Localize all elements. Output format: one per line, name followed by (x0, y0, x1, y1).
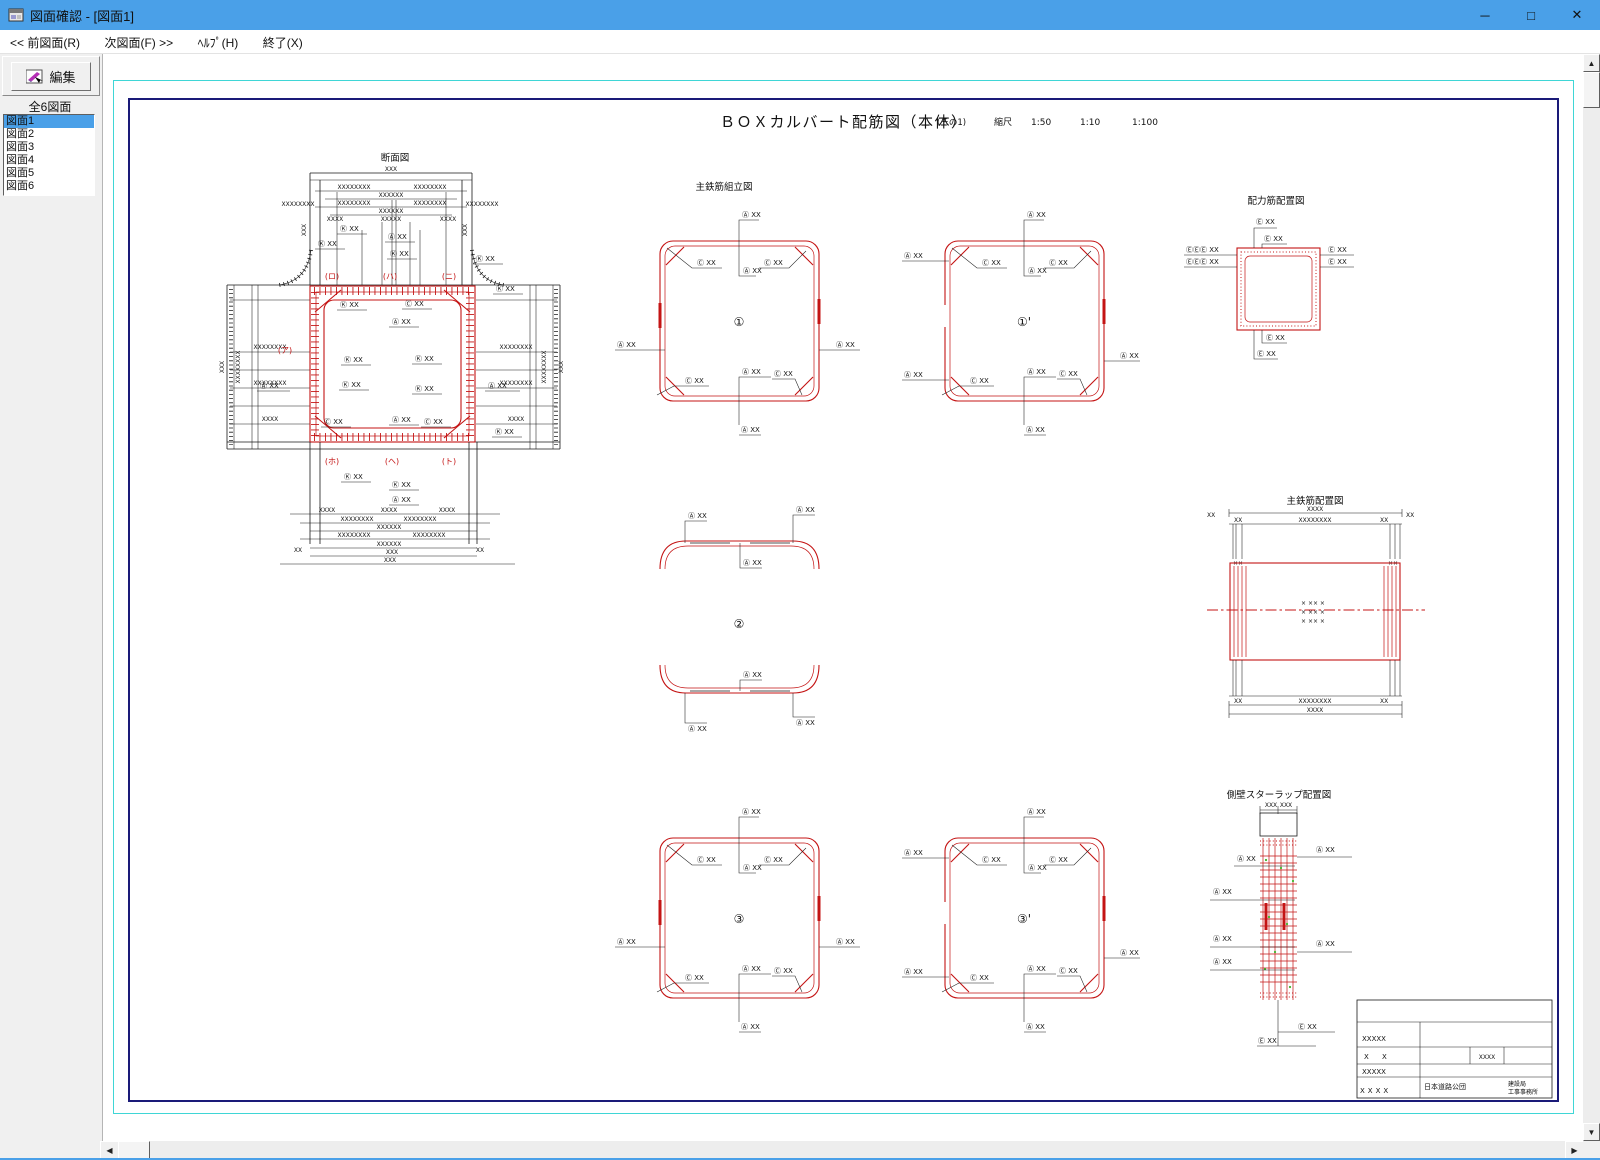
edit-button-label: 編集 (49, 67, 75, 86)
svg-text:ⒺⒺⒺ XX: ⒺⒺⒺ XX (1186, 258, 1219, 266)
sidebar: 編集 全6図面 図面1 図面2 図面3 図面4 図面5 図面6 (0, 54, 103, 1160)
distribution-bar-diagram: 配力筋配置図 Ⓔ XX Ⓔ XX ⒺⒺⒺ XX ⒺⒺⒺ XX Ⓔ XX Ⓔ XX… (1184, 195, 1354, 359)
list-item-drawing4[interactable]: 図面4 (4, 154, 94, 167)
svg-text:XXXX: XXXX (327, 216, 343, 223)
svg-text:XX: XX (294, 547, 302, 554)
svg-text:Ⓐ XX: Ⓐ XX (1120, 949, 1139, 957)
svg-text:× ×× ×: × ×× × (1301, 609, 1325, 616)
svg-text:XX: XX (1380, 698, 1388, 705)
svg-text:Ⓐ XX: Ⓐ XX (1213, 888, 1232, 896)
svg-text:Ⓐ XX: Ⓐ XX (1027, 211, 1046, 219)
svg-text:Ⓐ XX: Ⓐ XX (743, 559, 762, 567)
drawing-paper: ＢＯＸカルバート配筋図（本体） (その1) 縮尺 1:50 1:10 1:100… (128, 98, 1559, 1102)
svg-text:XXX: XXX (384, 557, 396, 564)
svg-text:XXXX: XXXX (508, 416, 524, 423)
svg-text:X: X (1364, 1053, 1369, 1061)
titlebar[interactable]: 図面確認 - [図面1] ─ □ ✕ (0, 0, 1600, 30)
svg-text:XXXXXXXX: XXXXXXXX (341, 516, 374, 523)
assembly-diagram-1: Ⓐ XX Ⓐ XX Ⓒ XX Ⓒ XX Ⓐ XX Ⓐ XX Ⓐ XX Ⓒ XX … (615, 211, 860, 435)
svg-text:XX: XX (1406, 512, 1414, 519)
svg-text:XXX: XXX (386, 549, 398, 556)
svg-text:Ⓐ XX: Ⓐ XX (1120, 352, 1139, 360)
edit-button[interactable]: 編集 (11, 62, 91, 91)
svg-text:XXX: XXX (462, 224, 469, 236)
svg-text:XXXXXXXX: XXXXXXXX (338, 200, 371, 207)
assembly-diagram-2: Ⓐ XX Ⓐ XX Ⓐ XX ② Ⓐ XX Ⓐ XX Ⓐ XX (660, 506, 819, 733)
svg-text:Ⓚ XX: Ⓚ XX (392, 481, 411, 489)
toolbar-frame: 編集 (2, 56, 100, 96)
svg-text:Ⓔ XX: Ⓔ XX (1328, 258, 1347, 266)
svg-text:XXXX: XXXX (319, 507, 335, 514)
svg-text:Ⓐ XX: Ⓐ XX (488, 382, 507, 390)
svg-text:③: ③ (734, 912, 745, 926)
svg-text:Ⓚ XX: Ⓚ XX (342, 381, 361, 389)
svg-text:XXXX: XXXX (1307, 506, 1323, 513)
svg-text:Ⓚ XX: Ⓚ XX (496, 285, 515, 293)
svg-text:Ⓔ XX: Ⓔ XX (1328, 246, 1347, 254)
svg-text:配力筋配置図: 配力筋配置図 (1247, 195, 1304, 207)
svg-text:Ⓒ XX: Ⓒ XX (774, 967, 793, 975)
scroll-down-icon: ▼ (1588, 1128, 1596, 1137)
svg-text:Ⓚ XX: Ⓚ XX (415, 355, 434, 363)
svg-text:(ホ): (ホ) (325, 457, 339, 466)
maximize-button[interactable]: □ (1508, 0, 1554, 30)
svg-text:建設局: 建設局 (1508, 1080, 1526, 1088)
svg-text:Ⓒ XX: Ⓒ XX (970, 974, 989, 982)
svg-text:Ⓚ XX: Ⓚ XX (344, 473, 363, 481)
svg-text:Ⓐ XX: Ⓐ XX (741, 426, 760, 434)
svg-text:XXXX: XXXX (1360, 1087, 1391, 1095)
svg-text:Ⓒ XX: Ⓒ XX (982, 856, 1001, 864)
minimize-button[interactable]: ─ (1462, 0, 1508, 30)
svg-text:③': ③' (1017, 912, 1031, 926)
svg-text:Ⓒ XX: Ⓒ XX (982, 259, 1001, 267)
app-icon (8, 7, 24, 23)
drawing-viewport[interactable]: ＢＯＸカルバート配筋図（本体） (その1) 縮尺 1:50 1:10 1:100… (103, 54, 1583, 1141)
svg-text:Ⓐ XX: Ⓐ XX (392, 416, 411, 424)
svg-text:XXXXXXXX: XXXXXXXX (235, 351, 242, 384)
horizontal-scroll-thumb[interactable] (118, 1141, 150, 1159)
svg-text:Ⓒ XX: Ⓒ XX (1049, 259, 1068, 267)
svg-text:Ⓐ XX: Ⓐ XX (1213, 958, 1232, 966)
svg-text:(ト): (ト) (442, 457, 456, 466)
svg-text:Ⓐ XX: Ⓐ XX (904, 968, 923, 976)
svg-text:XXX: XXX (219, 361, 226, 373)
title-block: XXXXX X X XXXX XXXXX XXXX 日本道路公団 建設局 工事事… (1357, 1000, 1552, 1098)
svg-text:Ⓐ XX: Ⓐ XX (688, 512, 707, 520)
svg-text:Ⓒ XX: Ⓒ XX (324, 418, 343, 426)
svg-text:Ⓐ XX: Ⓐ XX (617, 341, 636, 349)
svg-text:Ⓔ XX: Ⓔ XX (1257, 350, 1276, 358)
svg-text:工事事務所: 工事事務所 (1508, 1088, 1538, 1096)
svg-text:XXXXX: XXXXX (1362, 1068, 1386, 1076)
svg-text:XXX: XXX (301, 224, 308, 236)
svg-text:Ⓐ XX: Ⓐ XX (741, 1023, 760, 1031)
sheet-title: ＢＯＸカルバート配筋図（本体） (その1) 縮尺 1:50 1:10 1:100 (720, 113, 1158, 131)
svg-text:Ⓚ XX: Ⓚ XX (344, 356, 363, 364)
svg-text:1:10: 1:10 (1080, 118, 1100, 128)
scroll-left-icon: ◀ (106, 1146, 112, 1155)
svg-text:XXXXX: XXXXX (1362, 1035, 1386, 1043)
list-item-drawing1[interactable]: 図面1 (4, 115, 94, 128)
svg-text:Ⓐ XX: Ⓐ XX (836, 938, 855, 946)
svg-text:Ⓚ XX: Ⓚ XX (415, 385, 434, 393)
svg-text:XXXX: XXXX (381, 507, 397, 514)
svg-text:Ⓐ XX: Ⓐ XX (1027, 965, 1046, 973)
assembly-diagram-3: Ⓐ XX Ⓐ XX Ⓒ XX Ⓒ XX Ⓐ XX Ⓐ XX Ⓐ XX Ⓒ XX … (615, 808, 860, 1032)
svg-text:XXXXX: XXXXX (381, 216, 402, 223)
svg-text:XXXXXX: XXXXXX (377, 541, 402, 548)
list-item-drawing5[interactable]: 図面5 (4, 167, 94, 180)
drawing-count-label: 全6図面 (0, 98, 100, 115)
svg-text:Ⓐ XX: Ⓐ XX (796, 506, 815, 514)
vertical-scrollbar[interactable]: ▲ ▼ (1583, 54, 1600, 1141)
svg-text:× ×× ×: × ×× × (1301, 618, 1325, 625)
list-item-drawing2[interactable]: 図面2 (4, 128, 94, 141)
svg-text:XXXX: XXXX (1479, 1054, 1495, 1061)
svg-text:②: ② (734, 617, 745, 631)
window-controls: ─ □ ✕ (1462, 0, 1600, 30)
svg-text:XXXXXXXX: XXXXXXXX (1299, 698, 1332, 705)
menu-help[interactable]: ﾍﾙﾌﾟ(H) (188, 30, 249, 51)
svg-text:XXXXXXXX: XXXXXXXX (282, 201, 315, 208)
drawing-canvas: ＢＯＸカルバート配筋図（本体） (その1) 縮尺 1:50 1:10 1:100… (130, 100, 1557, 1100)
edit-icon (26, 69, 44, 84)
stirrup-diagram: 側壁スターラップ配置図 XXX XXX Ⓐ XX Ⓐ XX Ⓐ XX Ⓐ XX … (1210, 789, 1352, 1046)
svg-text:Ⓒ XX: Ⓒ XX (774, 370, 793, 378)
svg-text:Ⓒ XX: Ⓒ XX (1059, 967, 1078, 975)
svg-text:縮尺: 縮尺 (994, 116, 1012, 128)
svg-text:Ⓐ XX: Ⓐ XX (904, 371, 923, 379)
scrollbar-corner (1583, 1141, 1600, 1159)
svg-text:X: X (1382, 1053, 1387, 1061)
svg-text:Ⓐ XX: Ⓐ XX (904, 252, 923, 260)
svg-text:XX: XX (476, 547, 484, 554)
svg-text:Ⓐ XX: Ⓐ XX (392, 318, 411, 326)
svg-text:XXX: XXX (385, 166, 397, 173)
svg-text:XXXXXX: XXXXXX (379, 208, 404, 215)
scroll-up-button[interactable]: ▲ (1583, 54, 1600, 72)
svg-text:Ⓚ XX: Ⓚ XX (340, 225, 359, 233)
svg-text:Ⓚ XX: Ⓚ XX (318, 240, 337, 248)
cross-section-view: 断面図 XXX XXXXXXXX XXXXXXXX XXXXXX XXXXXXX… (219, 152, 565, 564)
svg-text:①: ① (734, 315, 745, 329)
svg-text:Ⓐ XX: Ⓐ XX (1026, 426, 1045, 434)
svg-text:XXXXXXXX: XXXXXXXX (414, 200, 447, 207)
svg-text:Ⓐ XX: Ⓐ XX (260, 382, 279, 390)
svg-text:XXXXXXXX: XXXXXXXX (466, 201, 499, 208)
svg-text:Ⓐ XX: Ⓐ XX (742, 211, 761, 219)
svg-text:XXX: XXX (558, 361, 565, 373)
close-button[interactable]: ✕ (1554, 0, 1600, 30)
svg-text:× ×× ×: × ×× × (1301, 600, 1325, 607)
svg-text:Ⓒ XX: Ⓒ XX (697, 856, 716, 864)
svg-text:XX: XX (1207, 512, 1215, 519)
svg-text:(ロ): (ロ) (325, 272, 339, 281)
scroll-up-icon: ▲ (1588, 59, 1596, 68)
svg-text:XXXXXXXX: XXXXXXXX (338, 184, 371, 191)
svg-text:XXXXXXXX: XXXXXXXX (404, 516, 437, 523)
svg-text:XX: XX (1234, 517, 1242, 524)
scroll-right-icon: ▶ (1571, 1146, 1577, 1155)
svg-text:XXXXXXXX: XXXXXXXX (413, 532, 446, 539)
svg-text:断面図: 断面図 (381, 152, 410, 164)
svg-text:1:100: 1:100 (1132, 118, 1158, 128)
scroll-left-button[interactable]: ◀ (100, 1141, 119, 1159)
svg-text:Ⓐ XX: Ⓐ XX (1316, 940, 1335, 948)
svg-text:Ⓔ XX: Ⓔ XX (1256, 218, 1275, 226)
svg-text:Ⓐ XX: Ⓐ XX (742, 965, 761, 973)
svg-text:(ア): (ア) (278, 346, 292, 355)
assembly-title: 主鉄筋組立図 (695, 181, 752, 193)
svg-text:XX: XX (1234, 698, 1242, 705)
svg-text:Ⓐ XX: Ⓐ XX (1213, 935, 1232, 943)
svg-text:Ⓚ XX: Ⓚ XX (476, 255, 495, 263)
svg-text:XXXX: XXXX (1307, 707, 1323, 714)
svg-text:Ⓐ XX: Ⓐ XX (1027, 808, 1046, 816)
svg-text:Ⓒ XX: Ⓒ XX (424, 418, 443, 426)
svg-text:Ⓒ XX: Ⓒ XX (697, 259, 716, 267)
assembly-diagram-3p: Ⓐ XX Ⓐ XX Ⓒ XX Ⓒ XX Ⓐ XX Ⓐ XX Ⓐ XX Ⓐ XX … (902, 808, 1140, 1032)
svg-text:Ⓐ XX: Ⓐ XX (742, 368, 761, 376)
svg-text:(その1): (その1) (937, 118, 966, 128)
svg-text:Ⓐ XX: Ⓐ XX (688, 725, 707, 733)
svg-text:Ⓒ XX: Ⓒ XX (685, 974, 704, 982)
svg-text:Ⓚ XX: Ⓚ XX (390, 250, 409, 258)
menubar: << 前図面(R) 次図面(F) >> ﾍﾙﾌﾟ(H) 終了(X) (0, 30, 1600, 54)
svg-text:Ⓒ XX: Ⓒ XX (405, 300, 424, 308)
svg-text:Ⓐ XX: Ⓐ XX (796, 719, 815, 727)
svg-text:Ⓔ XX: Ⓔ XX (1264, 235, 1283, 243)
svg-text:XXXXXX: XXXXXX (377, 524, 402, 531)
scroll-right-button[interactable]: ▶ (1565, 1141, 1584, 1159)
svg-text:XXXXXXXX: XXXXXXXX (414, 184, 447, 191)
svg-text:XXX: XXX (1280, 802, 1292, 809)
vertical-scroll-thumb[interactable] (1583, 72, 1600, 108)
svg-text:Ⓒ XX: Ⓒ XX (970, 377, 989, 385)
svg-text:Ⓔ XX: Ⓔ XX (1258, 1037, 1277, 1045)
svg-text:Ⓒ XX: Ⓒ XX (764, 856, 783, 864)
svg-text:ⒺⒺⒺ XX: ⒺⒺⒺ XX (1186, 246, 1219, 254)
svg-text:日本道路公団: 日本道路公団 (1424, 1082, 1466, 1091)
svg-text:Ⓐ XX: Ⓐ XX (1316, 846, 1335, 854)
svg-text:Ⓐ XX: Ⓐ XX (742, 808, 761, 816)
svg-text:Ⓐ XX: Ⓐ XX (392, 496, 411, 504)
svg-text:Ⓐ XX: Ⓐ XX (836, 341, 855, 349)
window-title: 図面確認 - [図面1] (30, 6, 134, 25)
svg-text:Ⓐ XX: Ⓐ XX (1237, 855, 1256, 863)
svg-text:XXXX: XXXX (262, 416, 278, 423)
svg-text:Ⓐ XX: Ⓐ XX (388, 233, 407, 241)
svg-text:Ⓒ XX: Ⓒ XX (1049, 856, 1068, 864)
svg-text:Ⓐ XX: Ⓐ XX (743, 671, 762, 679)
list-item-drawing6[interactable]: 図面6 (4, 180, 94, 193)
svg-text:Ⓐ XX: Ⓐ XX (904, 849, 923, 857)
svg-text:XXXX: XXXX (440, 216, 456, 223)
menu-exit[interactable]: 終了(X) (253, 30, 313, 51)
svg-text:XXXX: XXXX (439, 507, 455, 514)
scroll-down-button[interactable]: ▼ (1583, 1123, 1600, 1141)
svg-text:XXXXXXXX: XXXXXXXX (500, 344, 533, 351)
svg-text:Ⓒ XX: Ⓒ XX (1059, 370, 1078, 378)
svg-text:Ⓒ XX: Ⓒ XX (685, 377, 704, 385)
list-item-drawing3[interactable]: 図面3 (4, 141, 94, 154)
svg-text:Ⓚ XX: Ⓚ XX (340, 301, 359, 309)
svg-text:(ハ): (ハ) (383, 272, 397, 281)
svg-text:1:50: 1:50 (1031, 118, 1051, 128)
svg-text:側壁スターラップ配置図: 側壁スターラップ配置図 (1227, 789, 1332, 801)
svg-text:Ⓚ XX: Ⓚ XX (495, 428, 514, 436)
svg-text:XXXXXXXX: XXXXXXXX (1299, 517, 1332, 524)
svg-text:XX: XX (1380, 517, 1388, 524)
svg-text:XXXXXXXX: XXXXXXXX (338, 532, 371, 539)
svg-text:①': ①' (1017, 315, 1031, 329)
svg-text:XXXXXXXX: XXXXXXXX (541, 351, 548, 384)
svg-text:XXXXXX: XXXXXX (379, 192, 404, 199)
menu-prev-drawing[interactable]: << 前図面(R) (0, 30, 90, 51)
svg-text:Ⓐ XX: Ⓐ XX (1026, 1023, 1045, 1031)
svg-text:(ヘ): (ヘ) (385, 457, 399, 466)
svg-text:Ⓔ XX: Ⓔ XX (1298, 1023, 1317, 1031)
svg-text:Ⓐ XX: Ⓐ XX (617, 938, 636, 946)
svg-text:XXX: XXX (1265, 802, 1277, 809)
svg-text:Ⓒ XX: Ⓒ XX (764, 259, 783, 267)
menu-next-drawing[interactable]: 次図面(F) >> (94, 30, 183, 51)
horizontal-scrollbar[interactable]: ◀ ▶ (100, 1141, 1583, 1159)
svg-text:Ⓐ XX: Ⓐ XX (1027, 368, 1046, 376)
svg-text:ＢＯＸカルバート配筋図（本体）: ＢＯＸカルバート配筋図（本体） (720, 113, 968, 131)
main-bar-diagram: 主鉄筋配置図 XXXX XX XX XX XXXXXXXX XX ×× ×× ×… (1207, 495, 1425, 718)
svg-text:(ニ): (ニ) (442, 272, 456, 281)
assembly-diagram-1p: Ⓐ XX Ⓐ XX Ⓒ XX Ⓒ XX Ⓐ XX Ⓐ XX Ⓐ XX Ⓐ XX … (902, 211, 1140, 435)
drawing-listbox[interactable]: 図面1 図面2 図面3 図面4 図面5 図面6 (3, 114, 95, 196)
svg-text:Ⓔ XX: Ⓔ XX (1266, 334, 1285, 342)
